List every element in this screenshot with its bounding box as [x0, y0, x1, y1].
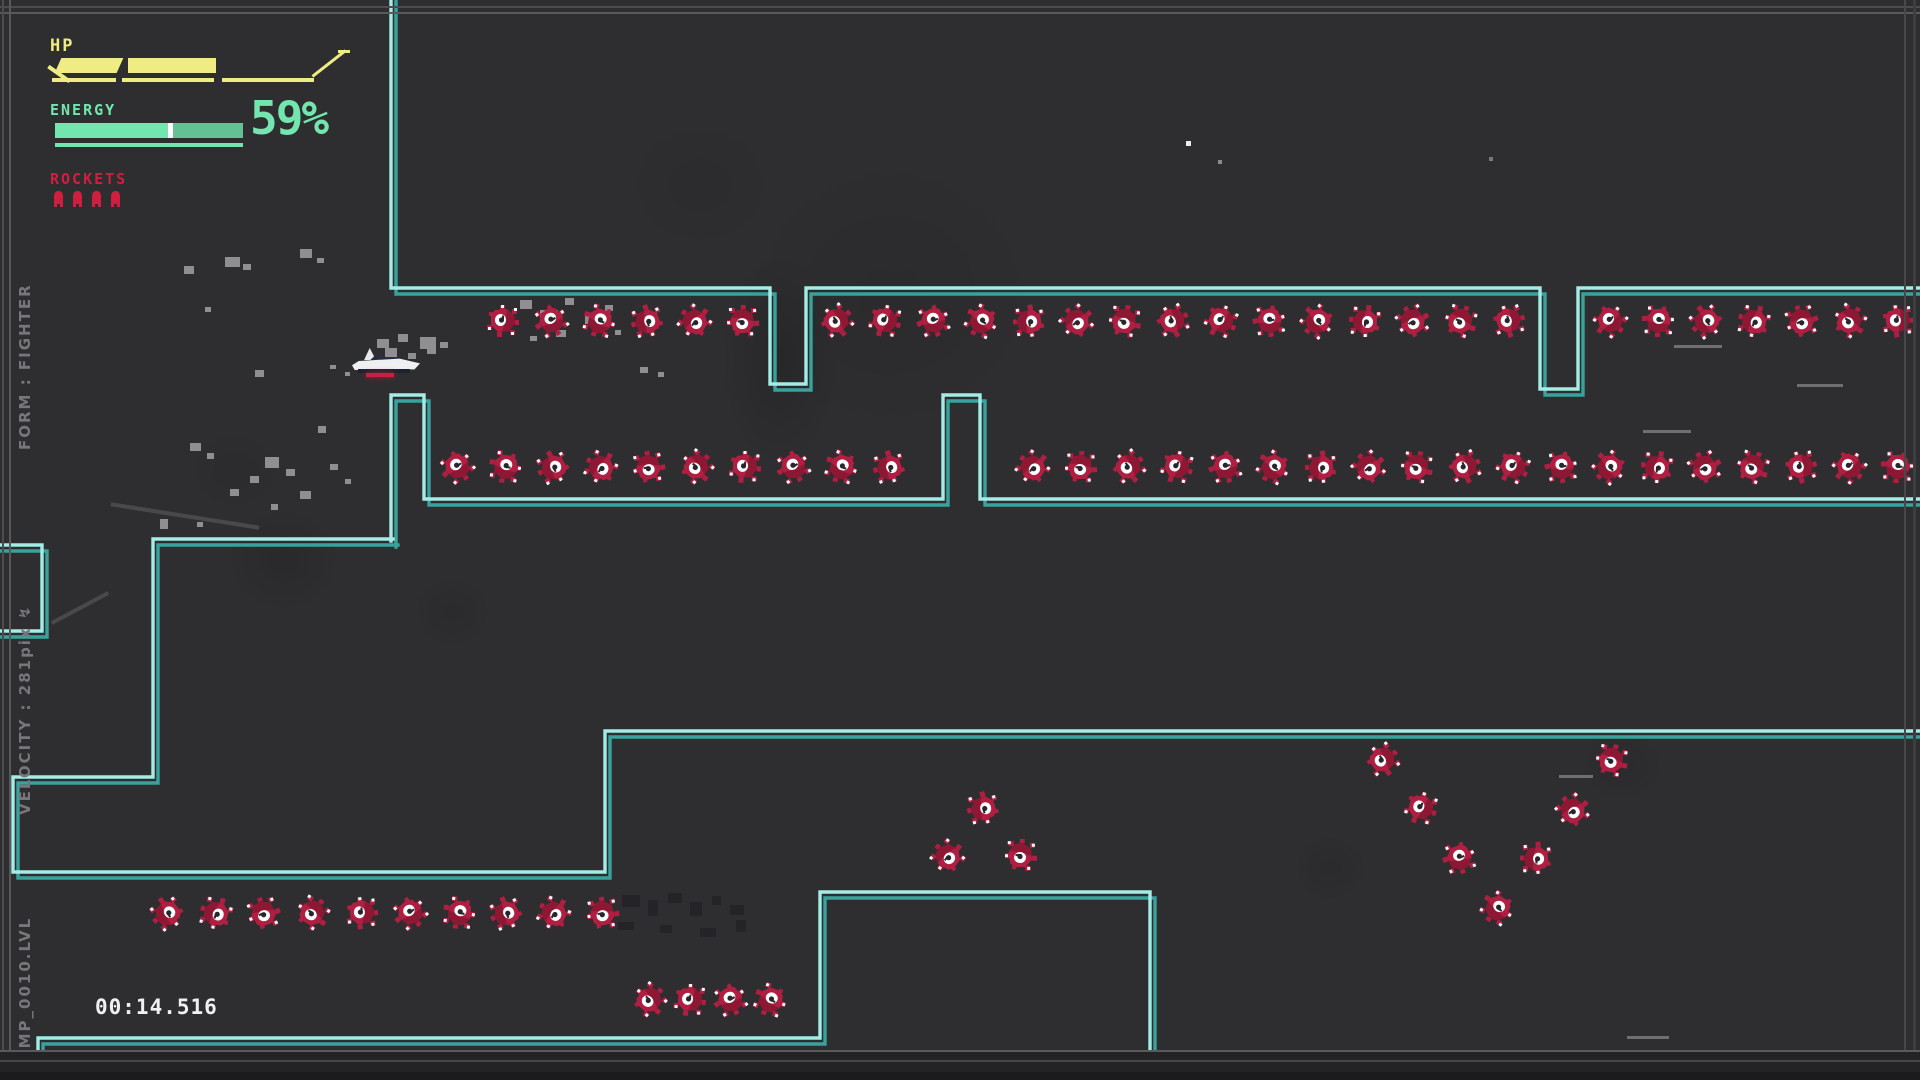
mine-enemy	[1542, 448, 1580, 486]
mine-enemy	[1443, 445, 1487, 489]
mine-enemy	[1518, 840, 1553, 875]
debris-chunk	[658, 372, 664, 377]
speed-dash	[1559, 775, 1593, 778]
mine-enemy	[243, 892, 285, 934]
mine-icon	[1438, 837, 1480, 879]
mine-enemy	[626, 300, 667, 341]
mine-icon	[533, 892, 576, 935]
mine-enemy	[1781, 300, 1824, 343]
mine-icon	[959, 299, 1002, 342]
mine-icon	[814, 298, 859, 343]
mine-icon	[673, 299, 717, 343]
rocket-icon	[109, 190, 122, 208]
hp-label: HP	[50, 36, 370, 56]
hp-bar-tip	[338, 50, 350, 53]
faded-debris	[712, 896, 721, 905]
mine-icon	[1586, 444, 1631, 489]
mine-enemy	[673, 299, 717, 343]
mine-enemy	[441, 895, 478, 932]
mine-icon	[1880, 450, 1913, 483]
mine-enemy	[1349, 305, 1382, 338]
mine-enemy	[1251, 445, 1295, 489]
mine-enemy	[484, 891, 527, 934]
mine-enemy	[749, 979, 790, 1020]
mine-enemy	[1064, 450, 1098, 484]
mine-enemy	[1151, 299, 1195, 343]
mine-icon	[1441, 301, 1481, 341]
mine-icon	[726, 304, 761, 339]
mine-enemy	[1492, 446, 1534, 488]
mine-icon	[963, 788, 1003, 828]
mine-enemy	[814, 298, 859, 343]
mine-enemy	[487, 449, 523, 485]
mine-icon	[1781, 447, 1821, 487]
background-shadow	[410, 574, 494, 650]
mine-enemy	[1735, 302, 1773, 340]
debris-chunk	[250, 476, 259, 483]
mine-enemy	[1641, 304, 1675, 338]
mine-icon	[1401, 788, 1440, 827]
mine-enemy	[1158, 448, 1196, 486]
rocket-ammo	[71, 190, 84, 208]
mine-icon	[1488, 300, 1529, 341]
faded-debris	[690, 902, 702, 916]
mine-enemy	[1588, 299, 1632, 343]
scratch-streak	[111, 502, 260, 529]
debris-chunk	[230, 489, 239, 496]
mine-enemy	[1441, 301, 1481, 341]
faded-debris	[668, 893, 682, 903]
debris-chunk	[530, 336, 537, 341]
mine-enemy	[1640, 450, 1674, 484]
player-ship	[352, 346, 422, 382]
mine-icon	[1158, 448, 1196, 486]
game-playfield[interactable]	[0, 0, 1920, 1080]
mine-enemy	[1683, 298, 1728, 343]
wall-staircase	[18, 545, 1920, 878]
hp-underline-2	[122, 78, 214, 82]
mine-icon	[1683, 298, 1728, 343]
mine-enemy	[912, 300, 955, 343]
wall-staircase	[13, 539, 1920, 872]
mine-icon	[1249, 301, 1288, 340]
mine-enemy	[1303, 449, 1339, 485]
mine-enemy	[1346, 444, 1391, 489]
mine-icon	[674, 444, 719, 489]
mine-icon	[1781, 300, 1824, 343]
level-timer: 00:14.516	[95, 995, 218, 1019]
hp-underline-3	[222, 78, 314, 82]
mine-enemy	[533, 892, 576, 935]
mine-icon	[441, 895, 478, 932]
level-walls	[0, 0, 1920, 1080]
debris-chunk	[300, 491, 311, 499]
rocket-icon	[71, 190, 84, 208]
mine-enemy	[1683, 445, 1727, 489]
sidebar-velocity-text: VELOCITY : 281pix ↯	[16, 455, 34, 815]
debris-chunk	[345, 479, 351, 484]
background-shadow	[615, 110, 785, 260]
mine-enemy	[1733, 447, 1774, 488]
mine-icon	[1588, 299, 1632, 343]
mine-icon	[1828, 299, 1871, 342]
mine-icon	[1064, 450, 1098, 484]
mine-icon	[630, 448, 669, 487]
rocket-ammo	[52, 190, 65, 208]
mine-icon	[1733, 447, 1774, 488]
energy-fill	[55, 123, 168, 138]
mine-icon	[484, 891, 527, 934]
mine-enemy	[580, 446, 622, 488]
mine-icon	[1010, 302, 1047, 339]
mine-enemy	[291, 891, 335, 935]
mine-enemy	[674, 444, 719, 489]
mine-enemy	[926, 834, 971, 879]
mine-enemy	[1550, 787, 1595, 832]
mine-enemy	[771, 445, 816, 490]
debris-chunk	[225, 257, 240, 267]
mine-icon	[580, 446, 622, 488]
mine-enemy	[866, 302, 904, 340]
mine-icon	[487, 305, 519, 337]
rocket-icon	[52, 190, 65, 208]
mine-enemy	[1880, 450, 1913, 483]
mine-icon	[708, 978, 752, 1022]
mine-enemy	[1011, 445, 1055, 489]
mine-icon	[1735, 302, 1773, 340]
rocket-ammo	[90, 190, 103, 208]
debris-chunk	[398, 334, 408, 342]
energy-label: ENERGY	[50, 101, 390, 119]
mine-enemy	[1781, 447, 1821, 487]
mine-enemy	[959, 299, 1002, 342]
faded-debris	[730, 905, 744, 915]
mine-enemy	[387, 890, 432, 935]
mine-enemy	[1586, 444, 1631, 489]
faded-debris	[736, 920, 746, 932]
debris-chunk	[640, 367, 648, 373]
background-shadow	[223, 505, 343, 615]
mine-icon	[1295, 299, 1340, 344]
mine-enemy	[344, 895, 380, 931]
mine-icon	[626, 300, 667, 341]
mine-icon	[1550, 787, 1595, 832]
mine-enemy	[1828, 299, 1871, 342]
debris-chunk	[330, 365, 336, 369]
mine-enemy	[1005, 839, 1038, 872]
mine-icon	[673, 983, 707, 1017]
scratch-streak	[51, 591, 109, 625]
spark-particle	[1489, 157, 1493, 161]
mine-icon	[1391, 299, 1436, 344]
mine-enemy	[1295, 299, 1340, 344]
mine-icon	[1443, 445, 1487, 489]
debris-chunk	[243, 264, 251, 270]
mine-icon	[912, 300, 955, 343]
mine-icon	[344, 895, 380, 931]
mine-icon	[1641, 304, 1675, 338]
energy-gauge: ENERGY 59%	[50, 101, 390, 161]
mine-enemy	[1399, 449, 1435, 485]
debris-chunk	[160, 519, 168, 529]
mine-enemy	[1010, 302, 1047, 339]
mine-enemy	[1880, 303, 1917, 340]
rocket-ammo	[109, 190, 122, 208]
hp-gauge: HP	[50, 36, 370, 96]
energy-fill-2	[173, 123, 243, 138]
mine-icon	[869, 447, 910, 488]
mine-icon	[1492, 446, 1534, 488]
sidebar-form-text: FORM : FIGHTER	[16, 200, 34, 450]
mine-enemy	[821, 447, 861, 487]
debris-chunk	[427, 347, 436, 354]
sidebar-levelfile-text: CAMP_0010.LVL	[16, 825, 34, 1075]
mine-icon	[1518, 840, 1553, 875]
debris-chunk	[565, 298, 574, 305]
mine-enemy	[1475, 886, 1519, 930]
faded-debris	[700, 928, 716, 937]
mine-icon	[749, 979, 790, 1020]
faded-debris	[660, 925, 672, 933]
mine-icon	[243, 892, 285, 934]
mine-enemy	[627, 977, 672, 1022]
mine-icon	[531, 445, 575, 489]
mine-icon	[1593, 741, 1630, 778]
mine-enemy	[1593, 741, 1630, 778]
faded-debris	[622, 895, 640, 907]
mine-enemy	[1391, 299, 1436, 344]
mine-enemy	[1249, 301, 1288, 340]
rocket-icon	[90, 190, 103, 208]
hp-segment-1	[55, 58, 124, 73]
spark-particle	[1186, 141, 1191, 146]
mine-icon	[821, 447, 861, 487]
mine-enemy	[869, 447, 910, 488]
mine-icon	[1640, 450, 1674, 484]
mine-enemy	[144, 890, 189, 935]
debris-chunk	[330, 464, 338, 470]
debris-chunk	[205, 307, 211, 312]
mine-enemy	[1488, 300, 1529, 341]
debris-chunk	[271, 504, 278, 510]
mine-icon	[1683, 445, 1727, 489]
mine-enemy	[434, 444, 479, 489]
mine-enemy	[1107, 303, 1142, 338]
debris-chunk	[520, 300, 532, 309]
energy-underline	[55, 143, 243, 147]
mine-icon	[1880, 303, 1917, 340]
background-shadow	[719, 250, 839, 470]
mine-enemy	[531, 445, 575, 489]
mine-enemy	[487, 305, 519, 337]
debris-chunk	[190, 443, 201, 451]
mine-icon	[434, 444, 479, 489]
background-shadow	[730, 145, 1050, 445]
mine-enemy	[630, 448, 669, 487]
mine-enemy	[1200, 300, 1242, 342]
mine-icon	[1107, 303, 1142, 338]
mine-icon	[1005, 839, 1038, 872]
mine-icon	[584, 894, 622, 932]
mine-icon	[1349, 305, 1382, 338]
debris-chunk	[318, 426, 326, 433]
mine-icon	[1346, 444, 1391, 489]
mine-icon	[1542, 448, 1580, 486]
ship-exhaust	[366, 373, 394, 377]
mine-icon	[1251, 445, 1295, 489]
mine-enemy	[584, 894, 622, 932]
background-shadow	[1290, 832, 1370, 904]
rocket-count-row	[52, 190, 122, 208]
mine-icon	[1475, 886, 1519, 930]
mine-icon	[1151, 299, 1195, 343]
mine-enemy	[1438, 837, 1480, 879]
mine-enemy	[963, 788, 1003, 828]
speed-dash	[1674, 345, 1722, 348]
mine-icon	[1827, 445, 1872, 490]
mine-icon	[1054, 298, 1099, 343]
hp-underline-1	[52, 78, 116, 82]
mine-icon	[728, 450, 761, 483]
faded-debris	[648, 900, 658, 916]
debris-chunk	[615, 330, 621, 335]
wall-top-corridor	[396, 0, 1920, 395]
game-screen: HP ENERGY 59% ROCKETS FORM : FIGHTER VEL…	[0, 0, 1920, 1080]
debris-chunk	[300, 249, 312, 258]
debris-chunk	[440, 342, 448, 348]
mine-icon	[487, 449, 523, 485]
mine-icon	[1204, 446, 1246, 488]
mine-enemy	[728, 450, 761, 483]
mine-enemy	[1106, 444, 1151, 489]
mine-enemy	[1054, 298, 1099, 343]
debris-chunk	[317, 258, 324, 263]
mine-enemy	[1827, 445, 1872, 490]
debris-chunk	[265, 457, 279, 468]
rockets-gauge: ROCKETS	[50, 170, 250, 230]
mine-icon	[926, 834, 971, 879]
debris-chunk	[255, 370, 264, 377]
debris-chunk	[207, 453, 214, 459]
debris-chunk	[345, 372, 350, 376]
mine-icon	[1200, 300, 1242, 342]
mine-enemy	[673, 983, 707, 1017]
mine-enemy	[1361, 738, 1406, 783]
background-shadow	[185, 425, 285, 515]
mine-icon	[144, 890, 189, 935]
mine-enemy	[197, 894, 236, 933]
speed-dash	[1627, 1036, 1669, 1039]
mine-icon	[1011, 445, 1055, 489]
mine-icon	[1106, 444, 1151, 489]
mine-icon	[1361, 738, 1406, 783]
hp-segment-2	[128, 58, 216, 73]
speed-dash	[1797, 384, 1843, 387]
rockets-label: ROCKETS	[50, 170, 250, 188]
mine-enemy	[1401, 788, 1440, 827]
mine-icon	[627, 977, 672, 1022]
mine-icon	[1399, 449, 1435, 485]
mine-icon	[866, 302, 904, 340]
mine-enemy	[1204, 446, 1246, 488]
mine-icon	[387, 890, 432, 935]
mine-icon	[1303, 449, 1339, 485]
debris-chunk	[197, 522, 203, 527]
energy-percent: 59%	[250, 91, 327, 145]
mine-enemy	[708, 978, 752, 1022]
speed-dash	[1643, 430, 1691, 433]
mine-enemy	[726, 304, 761, 339]
mine-icon	[291, 891, 335, 935]
mine-icon	[771, 445, 816, 490]
debris-chunk	[286, 469, 295, 476]
spark-particle	[1218, 160, 1222, 164]
debris-chunk	[184, 266, 194, 274]
mine-icon	[197, 894, 236, 933]
